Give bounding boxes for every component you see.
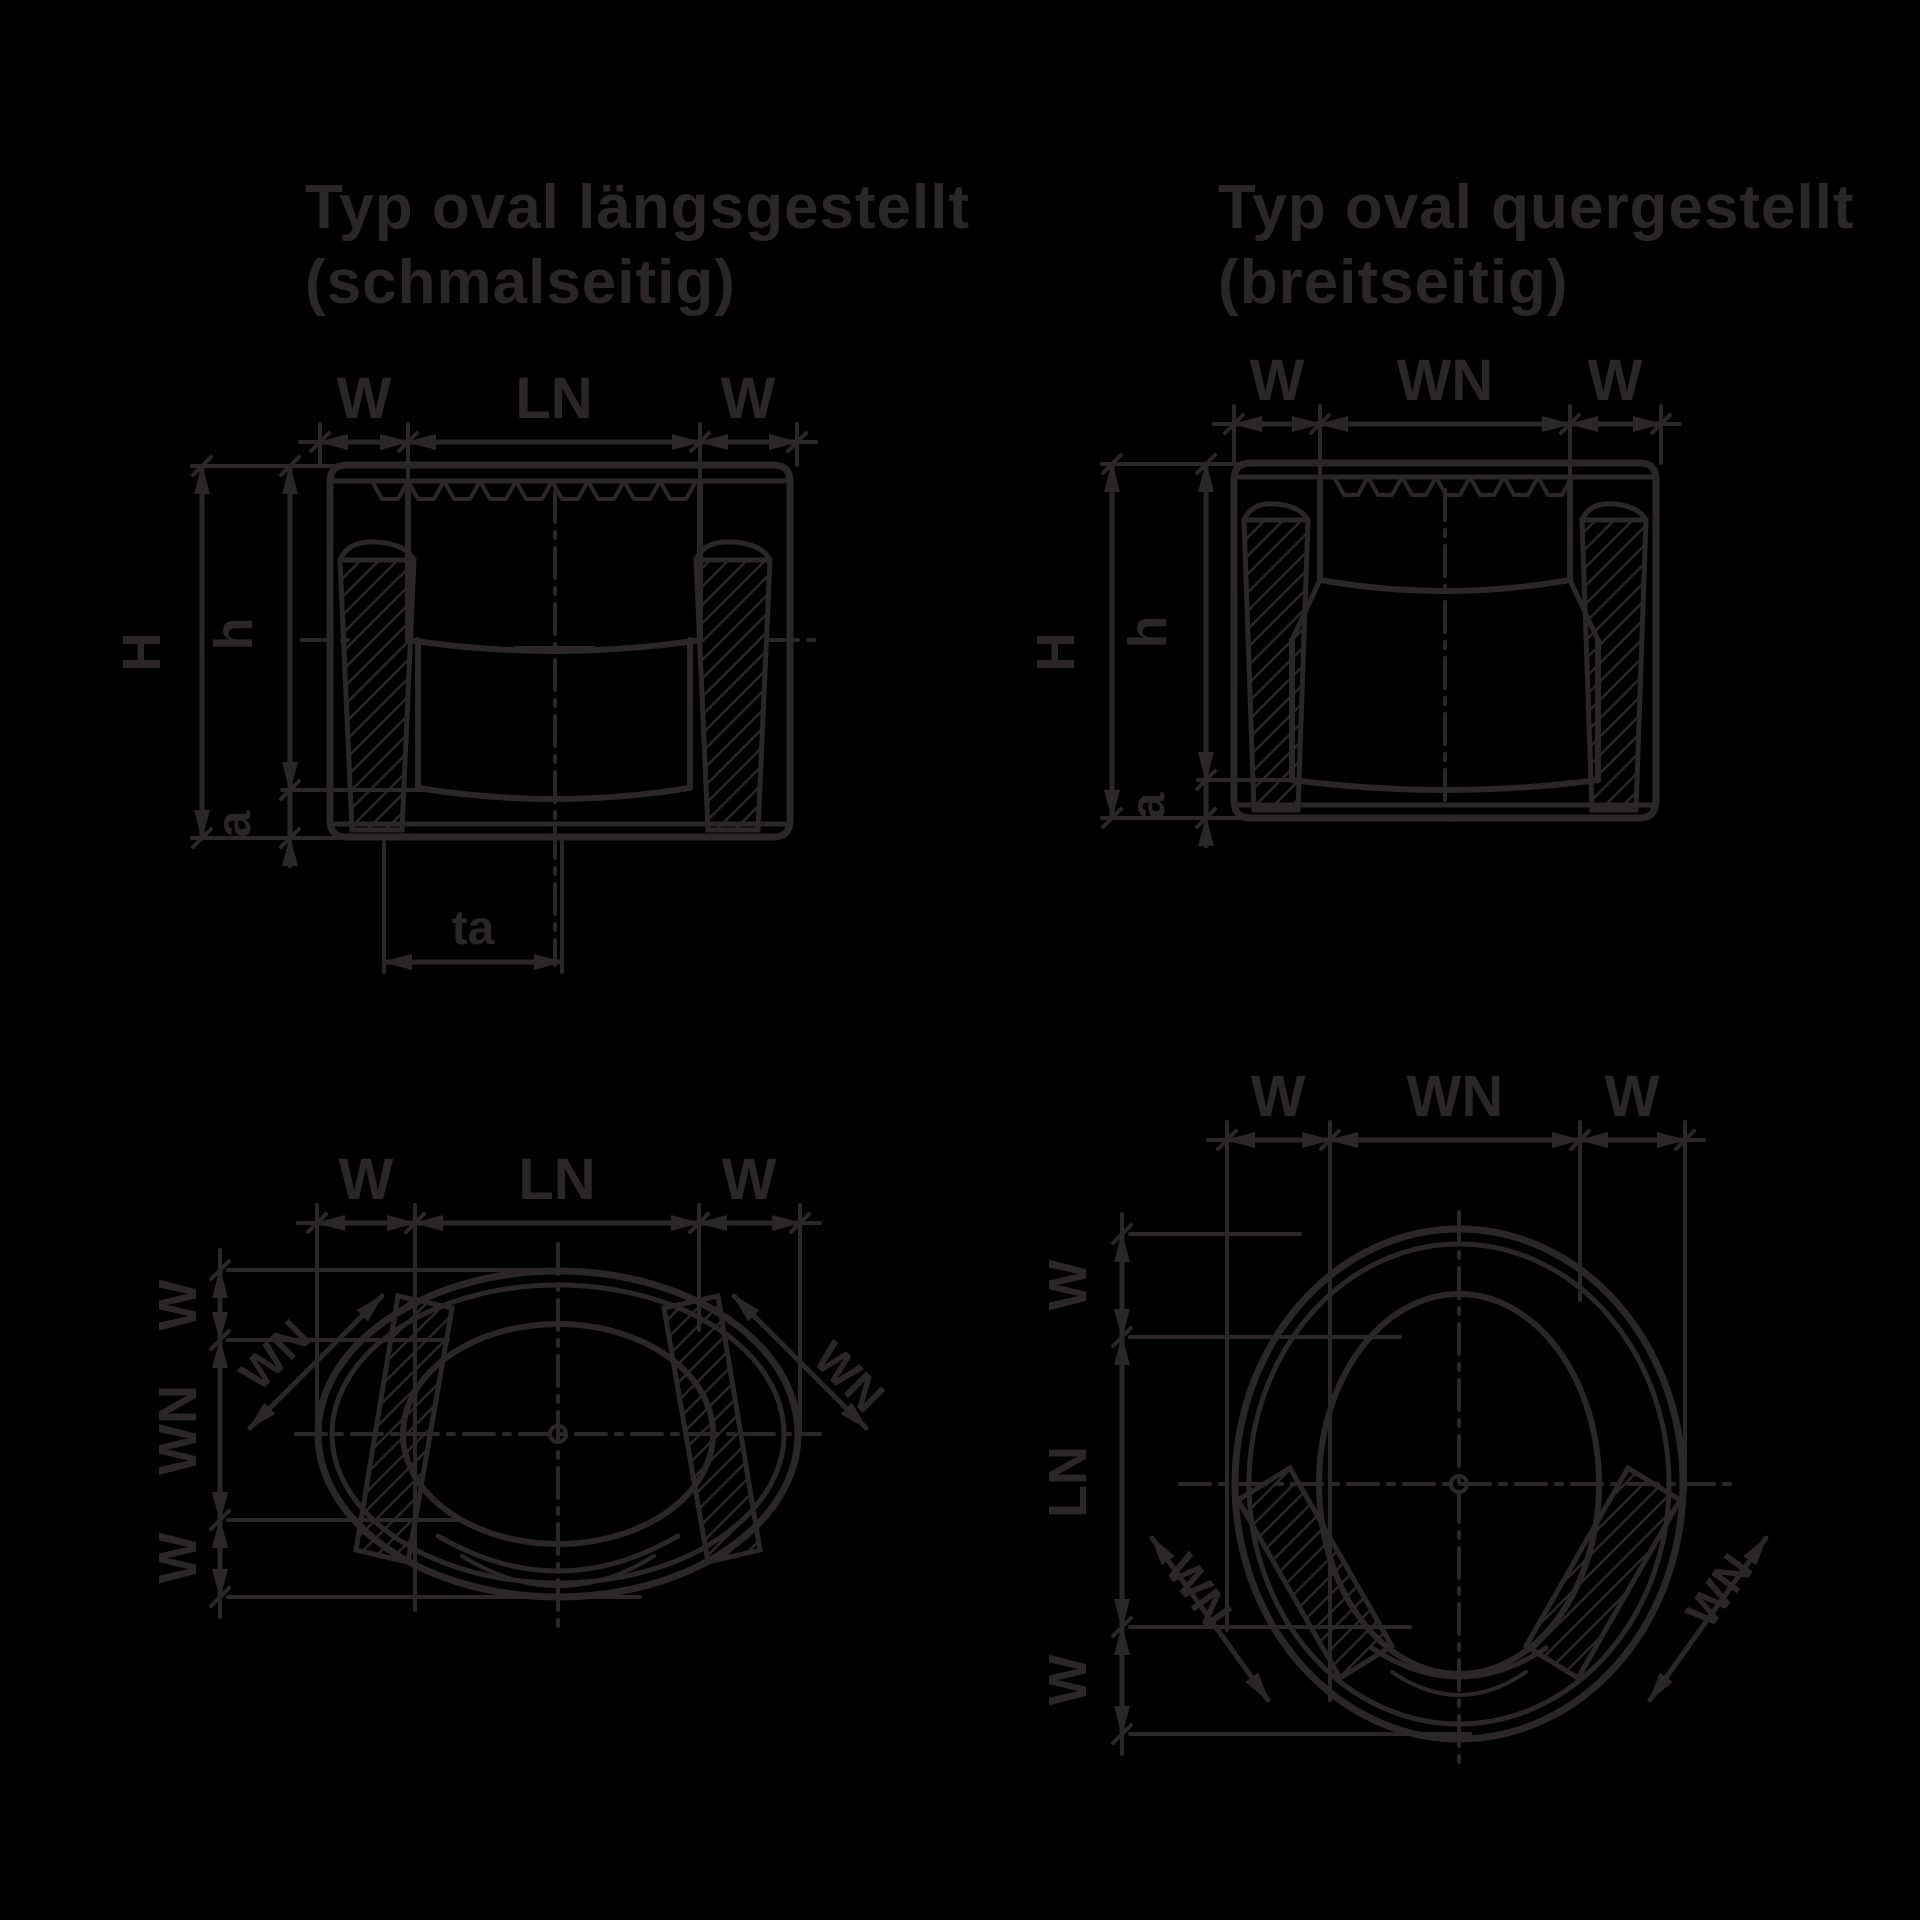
d1-dim-clearance: a — [208, 810, 261, 837]
d3-dim-left-wn: WN — [148, 1385, 208, 1475]
d4-dim-w-left: W — [1251, 1064, 1306, 1129]
d3-dim-left-w-top: W — [148, 1279, 208, 1330]
oval-tank-dimension-drawing: Typ oval längsgestellt (schmalseitig) W … — [0, 0, 1920, 1920]
d2-strap-right — [1582, 504, 1646, 810]
d4-dim-left-ln: LN — [1038, 1446, 1098, 1518]
d4-dim-left-w-top: W — [1038, 1259, 1098, 1310]
d3-dim-diag-left-wn: WN — [229, 1309, 320, 1400]
d2-dim-w-right: W — [1588, 348, 1643, 413]
d2-dim-height-total: H — [1026, 633, 1086, 672]
diagram-plan-laengsgestellt: W LN W W WN W — [148, 1147, 895, 1630]
d3-dim-w-right: W — [722, 1147, 777, 1212]
d2-rim-serration — [1334, 477, 1572, 495]
d4-tank-plan — [1180, 1212, 1738, 1768]
d4-dim-left-w-bottom: W — [1038, 1654, 1098, 1705]
d1-dim-w-right: W — [721, 366, 776, 431]
d4-top-dimension-chain: W WN W — [1208, 1064, 1704, 1700]
d1-dim-stand-width: ta — [452, 902, 495, 955]
d1-dim-w-left: W — [337, 366, 392, 431]
d4-dim-wn: WN — [1407, 1064, 1504, 1129]
d1-rim-serration — [372, 481, 696, 499]
d2-tank-body — [1234, 463, 1656, 818]
diagram-plan-quergestellt: W WN W W LN W — [1038, 1064, 1766, 1768]
d2-dim-clearance: a — [1122, 792, 1175, 819]
d4-strap-left — [1238, 1468, 1392, 1678]
d2-dim-height-inner: h — [1118, 616, 1178, 649]
d1-strap-left — [340, 542, 414, 830]
diagram2-title-line1: Typ oval quergestellt — [1218, 173, 1855, 242]
d2-strap-left — [1244, 504, 1308, 810]
d1-strap-right — [696, 542, 770, 830]
d3-dim-ln: LN — [518, 1147, 595, 1212]
d2-top-dimension-chain: W WN W — [1214, 348, 1680, 477]
d2-dim-w-left: W — [1250, 348, 1305, 413]
diagram2-title-line2: (breitseitig) — [1218, 248, 1569, 317]
diagram-elevation-quergestellt: Typ oval quergestellt (breitseitig) W WN… — [1026, 173, 1855, 846]
d1-dim-height-total: H — [112, 633, 172, 672]
diagram1-title-line1: Typ oval längsgestellt — [305, 173, 970, 242]
d1-left-dimensions: H h a — [112, 457, 522, 866]
technical-drawing-page: Typ oval längsgestellt (schmalseitig) W … — [0, 0, 1920, 1920]
d3-dim-w-left: W — [339, 1147, 394, 1212]
d3-dim-left-w-bottom: W — [148, 1532, 208, 1583]
diagram1-title-line2: (schmalseitig) — [305, 248, 736, 317]
d1-dim-height-inner: h — [204, 618, 264, 651]
d1-dim-ln: LN — [515, 366, 592, 431]
d1-bottom-dimension: ta — [384, 842, 562, 972]
d2-dim-wn: WN — [1397, 348, 1494, 413]
d3-dim-diag-right-wn: WN — [804, 1331, 895, 1422]
d4-strap-right — [1526, 1468, 1680, 1678]
d4-dim-w-right: W — [1605, 1064, 1660, 1129]
diagram-elevation-laengsgestellt: Typ oval längsgestellt (schmalseitig) W … — [112, 173, 970, 972]
